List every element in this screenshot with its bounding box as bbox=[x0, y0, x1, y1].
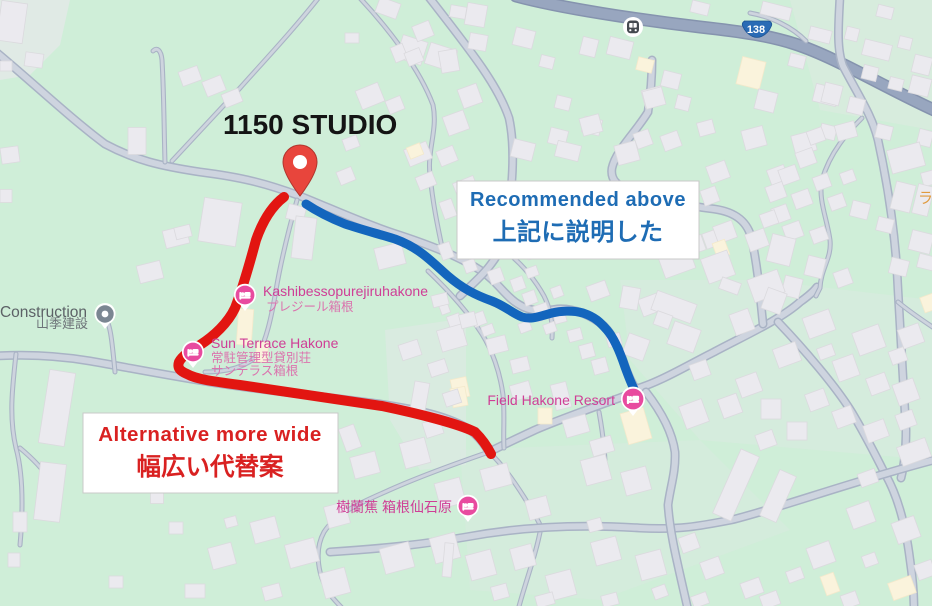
svg-text:Field Hakone Resort: Field Hakone Resort bbox=[487, 392, 615, 408]
svg-text:常駐管理型貸別荘: 常駐管理型貸別荘 bbox=[211, 350, 311, 365]
svg-text:サンテラス箱根: サンテラス箱根 bbox=[211, 363, 299, 378]
svg-text:樹蘭蕉 箱根仙石原: 樹蘭蕉 箱根仙石原 bbox=[336, 499, 452, 515]
svg-text:Sun Terrace Hakone: Sun Terrace Hakone bbox=[211, 335, 339, 351]
svg-text:Recommended above: Recommended above bbox=[470, 189, 686, 211]
svg-text:Alternative more wide: Alternative more wide bbox=[98, 423, 322, 446]
svg-text:Kashibessopurejiruhakone: Kashibessopurejiruhakone bbox=[263, 283, 428, 299]
svg-text:幅広い代替案: 幅広い代替案 bbox=[137, 452, 284, 481]
svg-text:山季建設: 山季建設 bbox=[36, 316, 88, 331]
svg-text:ラ: ラ bbox=[918, 190, 932, 207]
svg-text:プレジール箱根: プレジール箱根 bbox=[266, 299, 354, 314]
svg-text:138: 138 bbox=[747, 24, 765, 36]
svg-text:上記に説明した: 上記に説明した bbox=[493, 218, 664, 246]
svg-text:1150 STUDIO: 1150 STUDIO bbox=[223, 109, 397, 140]
